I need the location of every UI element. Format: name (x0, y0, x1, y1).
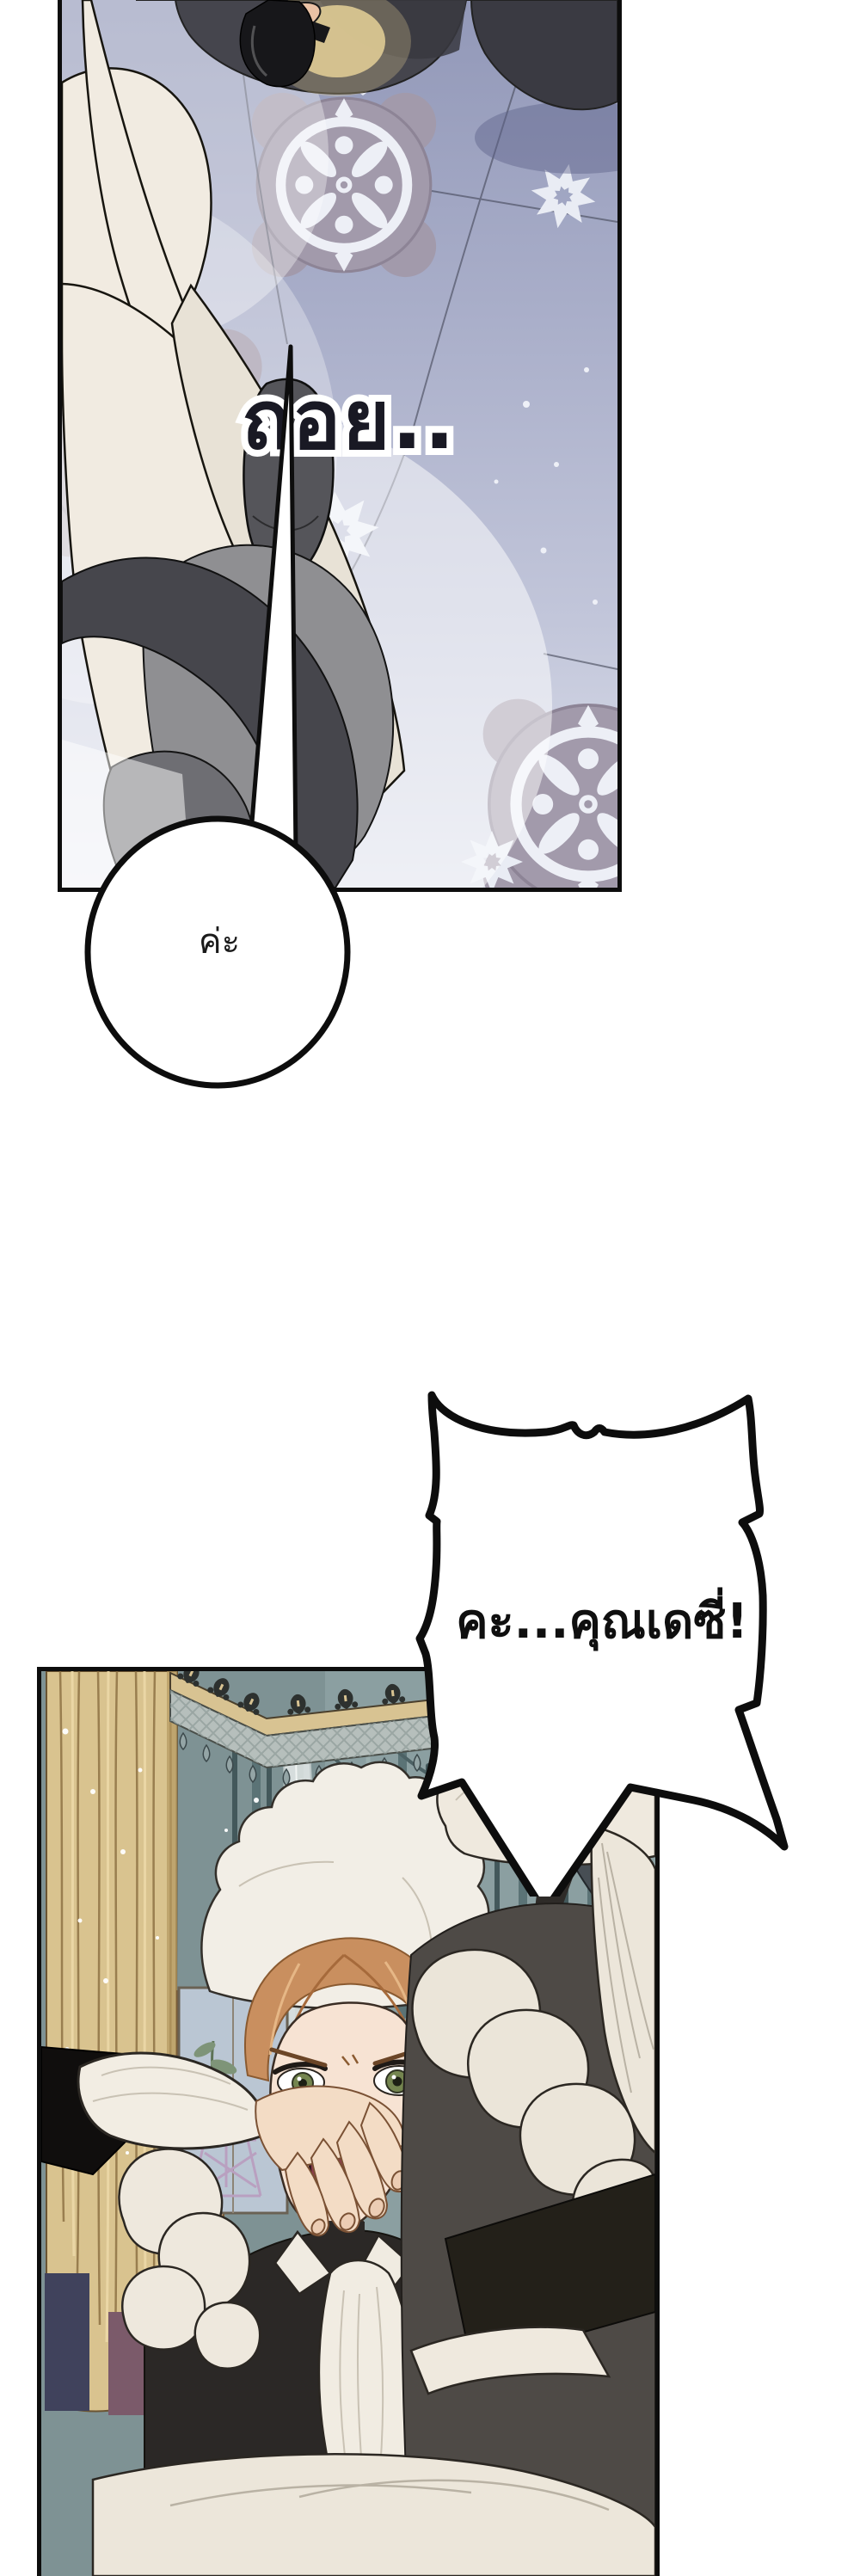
comic-page: ถอย.. ถอย.. ค่ะ (0, 0, 860, 2576)
shout-bubble-text: คะ...คุณเดซี่! (447, 1583, 757, 1659)
speech-bubble-small (73, 314, 374, 1114)
speech-bubble-small-text: ค่ะ (129, 913, 310, 968)
speech-bubble-tail (251, 347, 296, 856)
